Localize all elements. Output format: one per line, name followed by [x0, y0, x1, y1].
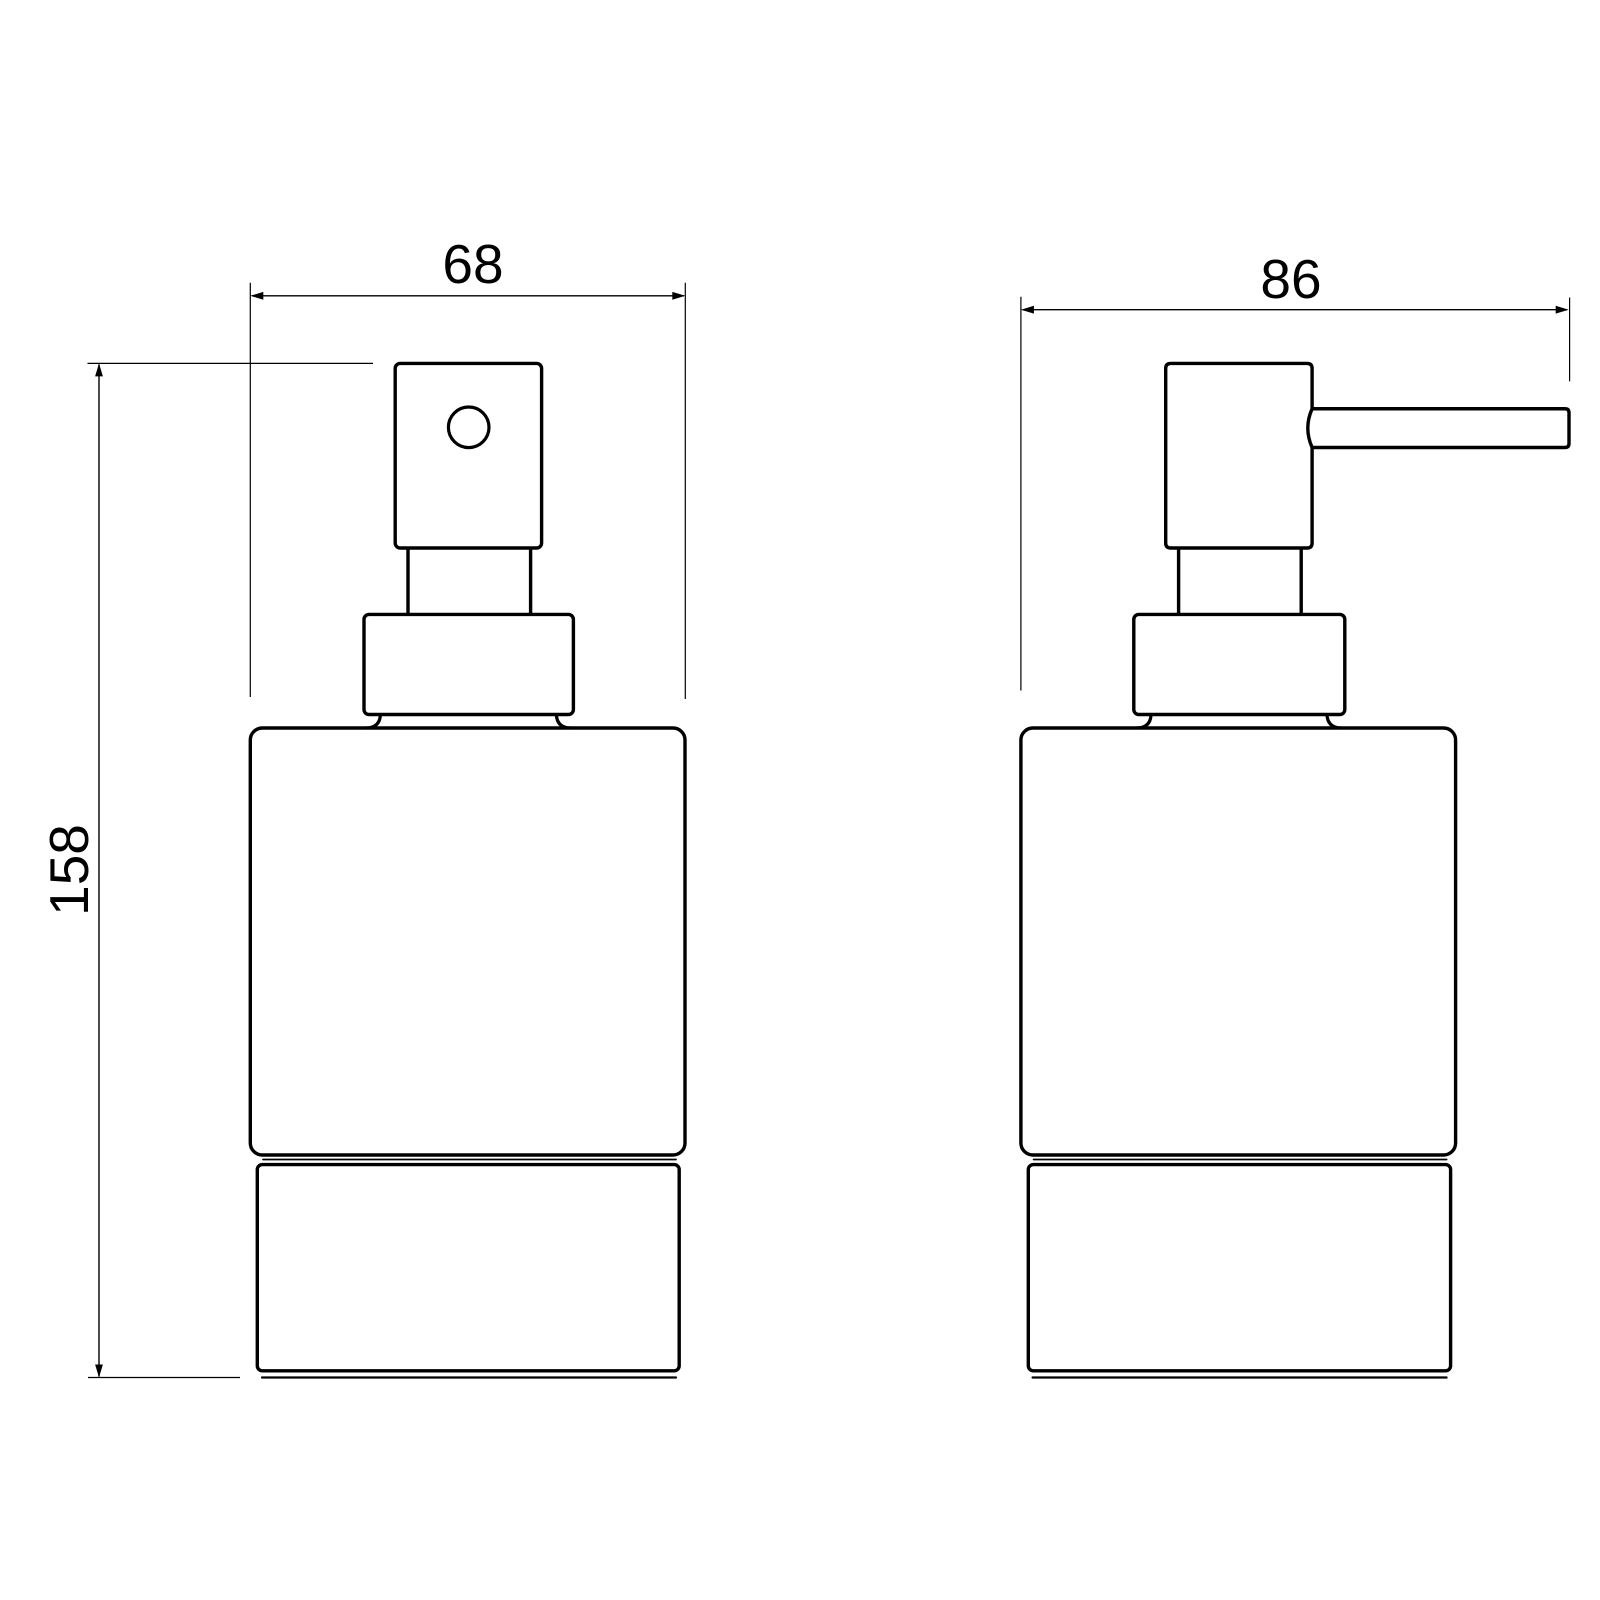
svg-text:68: 68	[442, 233, 503, 295]
svg-text:86: 86	[1260, 248, 1321, 310]
svg-text:158: 158	[38, 824, 100, 916]
